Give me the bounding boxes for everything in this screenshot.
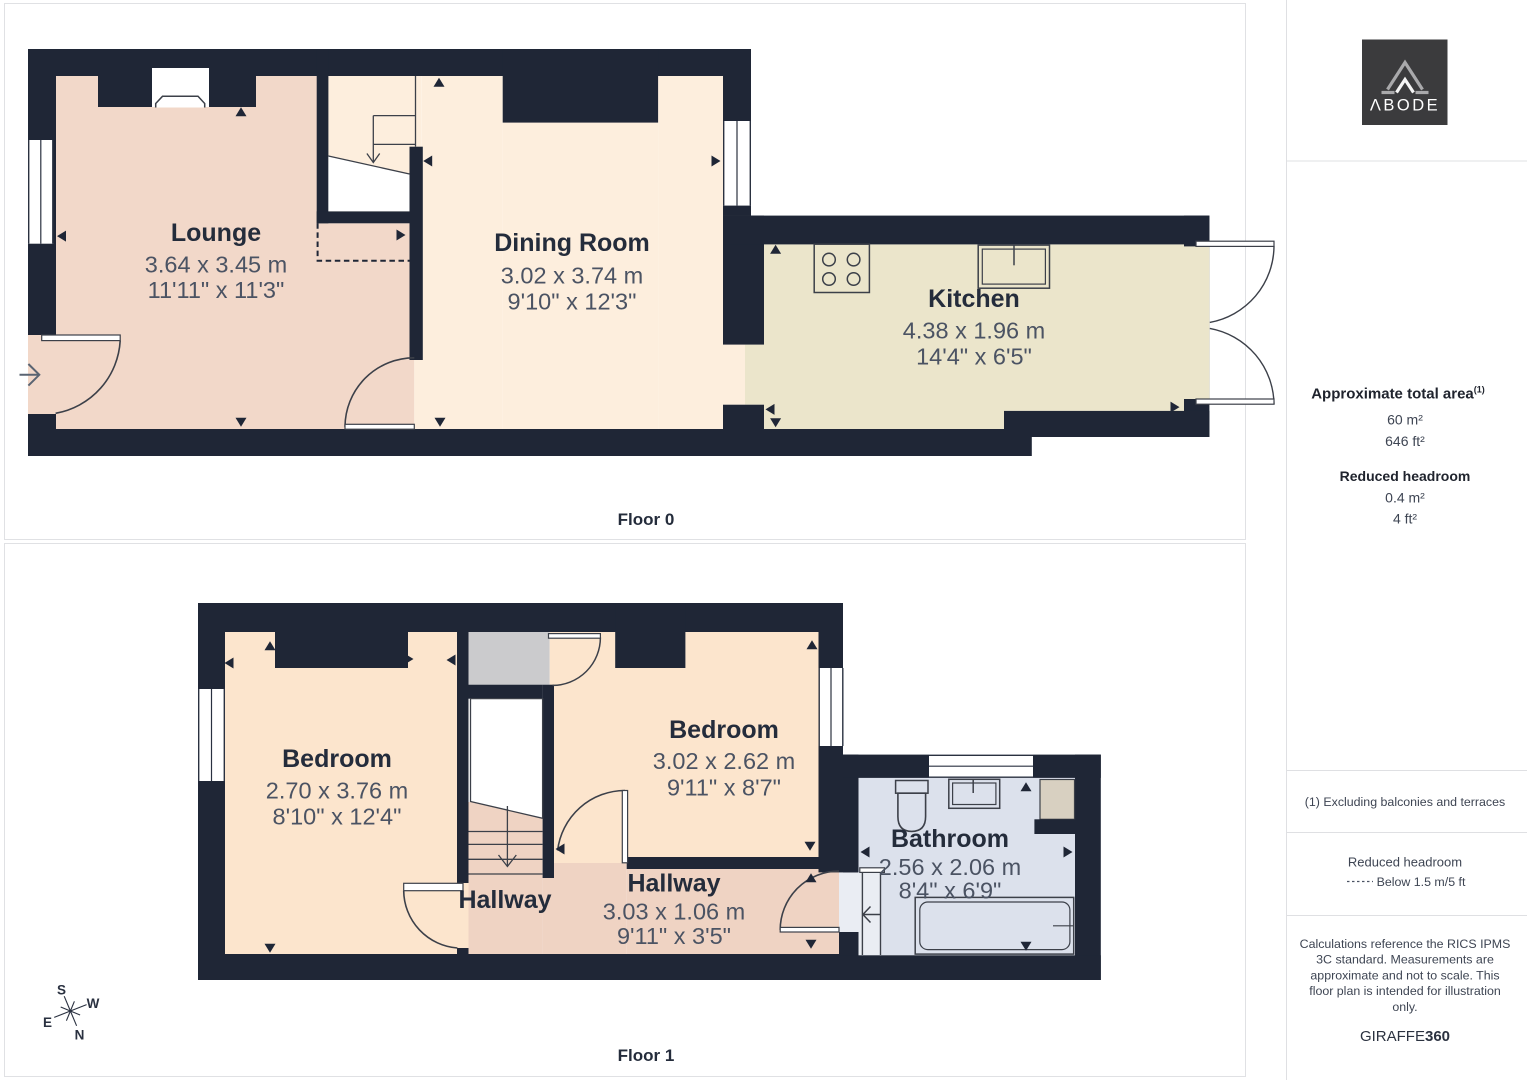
svg-text:Floor 1: Floor 1 [618,1046,675,1065]
svg-text:2.56 x 2.06 m: 2.56 x 2.06 m [879,854,1021,880]
svg-text:9'10" x 12'3": 9'10" x 12'3" [508,289,637,315]
svg-text:8'4" x 6'9": 8'4" x 6'9" [899,878,1002,904]
svg-text:Reduced headroom: Reduced headroom [1348,855,1462,870]
svg-text:Floor 0: Floor 0 [618,510,675,529]
svg-text:646 ft²: 646 ft² [1385,433,1425,449]
svg-text:ΛBODE: ΛBODE [1370,97,1440,115]
svg-text:3C standard. Measurements are: 3C standard. Measurements are [1316,953,1494,967]
svg-text:9'11" x 3'5": 9'11" x 3'5" [617,923,731,949]
svg-text:Bathroom: Bathroom [891,825,1009,853]
svg-text:floor plan is intended for ill: floor plan is intended for illustration [1309,984,1501,998]
svg-text:Approximate total area(1): Approximate total area(1) [1311,385,1485,403]
svg-text:0.4 m²: 0.4 m² [1385,490,1425,506]
svg-text:Lounge: Lounge [171,219,261,247]
svg-text:GIRAFFE360: GIRAFFE360 [1360,1028,1450,1045]
svg-text:11'11" x 11'3": 11'11" x 11'3" [148,277,285,303]
svg-text:4 ft²: 4 ft² [1393,511,1417,527]
svg-text:Kitchen: Kitchen [928,285,1020,313]
svg-text:3.02 x 3.74 m: 3.02 x 3.74 m [501,263,643,289]
svg-text:Bedroom: Bedroom [669,716,779,744]
svg-text:60 m²: 60 m² [1387,412,1423,428]
svg-text:(1) Excluding balconies and te: (1) Excluding balconies and terraces [1305,795,1505,809]
svg-text:3.03 x 1.06 m: 3.03 x 1.06 m [603,899,745,925]
svg-text:3.64 x 3.45 m: 3.64 x 3.45 m [145,252,287,278]
svg-text:9'11" x 8'7": 9'11" x 8'7" [667,775,781,801]
svg-text:Dining Room: Dining Room [494,229,650,257]
svg-text:W: W [87,996,100,1011]
svg-text:Hallway: Hallway [458,886,551,914]
svg-text:3.02 x 2.62 m: 3.02 x 2.62 m [653,748,795,774]
svg-text:Below 1.5 m/5 ft: Below 1.5 m/5 ft [1377,875,1466,889]
svg-text:14'4" x 6'5": 14'4" x 6'5" [916,344,1032,370]
svg-text:Bedroom: Bedroom [282,745,392,773]
svg-text:E: E [43,1015,52,1030]
svg-text:N: N [75,1028,85,1043]
svg-text:4.38 x 1.96 m: 4.38 x 1.96 m [903,318,1045,344]
svg-text:8'10" x 12'4": 8'10" x 12'4" [273,804,402,830]
svg-text:2.70 x 3.76 m: 2.70 x 3.76 m [266,778,408,804]
svg-text:Hallway: Hallway [627,870,720,898]
svg-text:approximate and not to scale.: approximate and not to scale. This [1310,968,1499,982]
svg-text:Reduced headroom: Reduced headroom [1340,468,1471,484]
svg-text:Calculations reference the RIC: Calculations reference the RICS IPMS [1300,937,1511,951]
svg-text:only.: only. [1392,1000,1417,1014]
svg-text:S: S [57,983,66,998]
